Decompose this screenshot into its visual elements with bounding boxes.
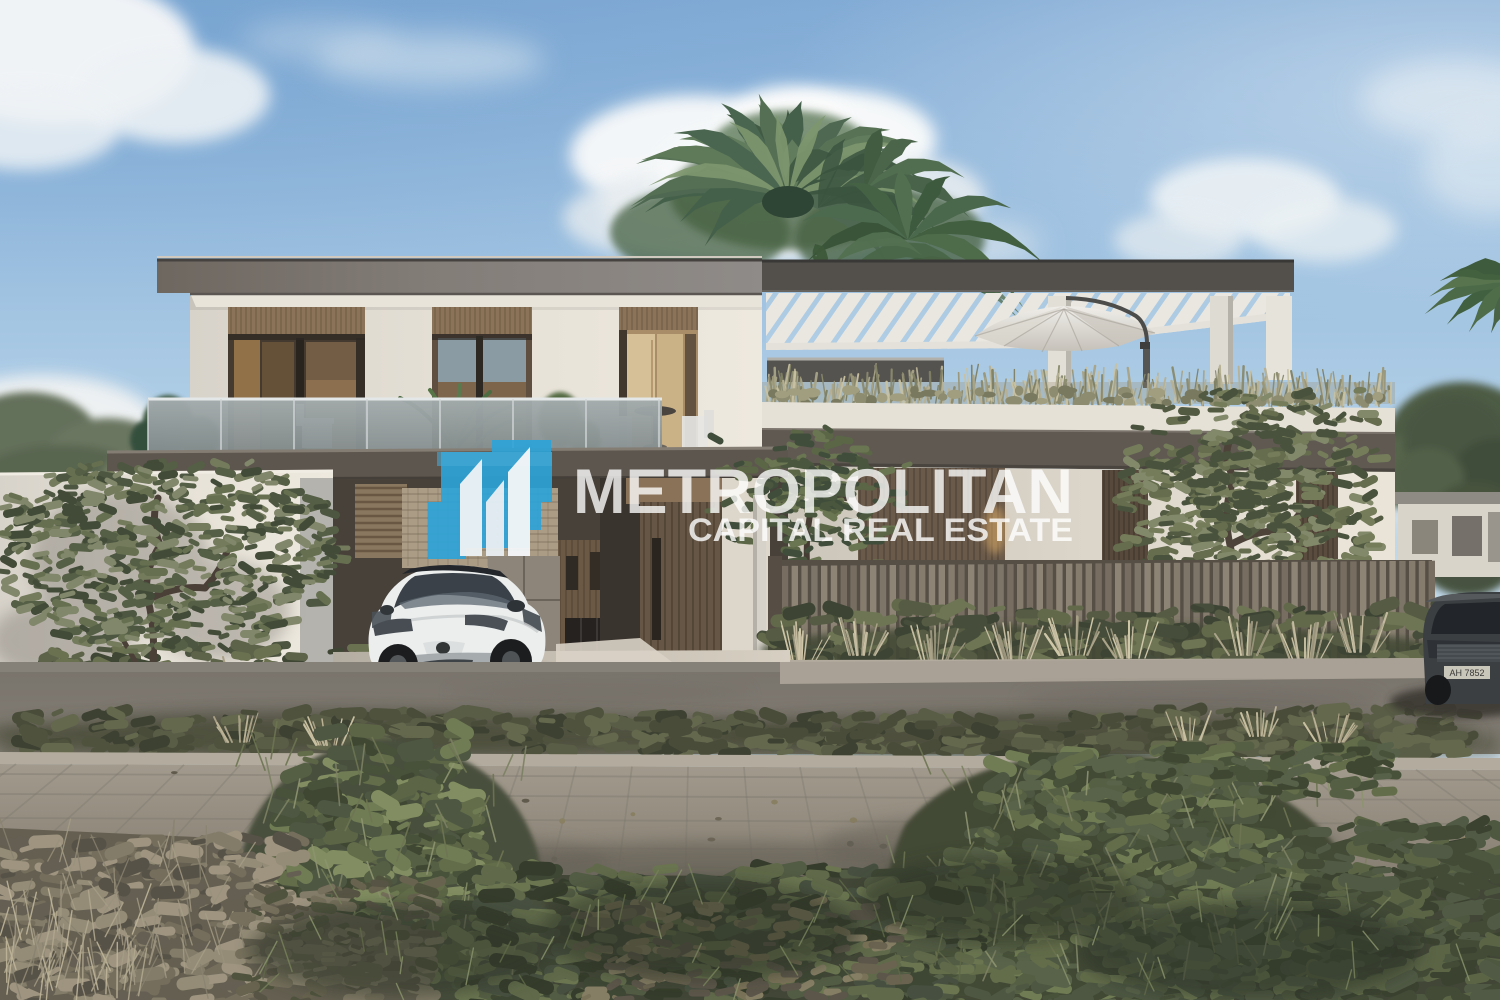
svg-text:CAPITAL REAL ESTATE: CAPITAL REAL ESTATE	[688, 512, 1073, 548]
svg-text:AH 7852: AH 7852	[1449, 668, 1484, 678]
